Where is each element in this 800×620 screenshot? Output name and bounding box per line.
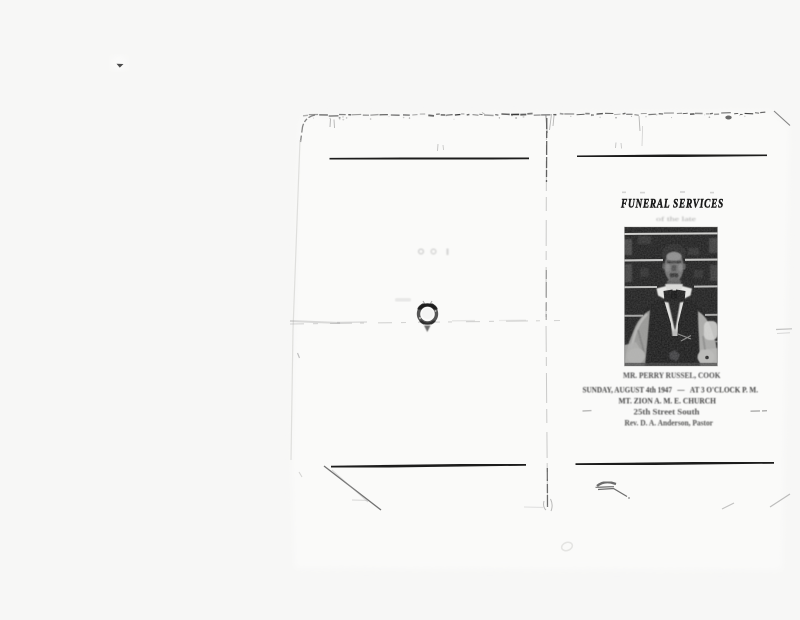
svg-text:25th Street South: 25th Street South [634,408,701,417]
svg-text:MR. PERRY RUSSEL, COOK: MR. PERRY RUSSEL, COOK [623,371,721,380]
svg-text:SUNDAY, AUGUST 4th 1947 —: SUNDAY, AUGUST 4th 1947 — AT 3 O'CLOCK P… [583,385,759,395]
svg-text:MT. ZION A. M. E. CHURCH: MT. ZION A. M. E. CHURCH [619,396,717,406]
svg-text:FUNERAL SERVICES: FUNERAL SERVICES [620,196,724,211]
svg-text:Rev. D. A. Anderson, Pastor: Rev. D. A. Anderson, Pastor [625,419,714,428]
svg-text:of the late: of the late [656,216,696,223]
